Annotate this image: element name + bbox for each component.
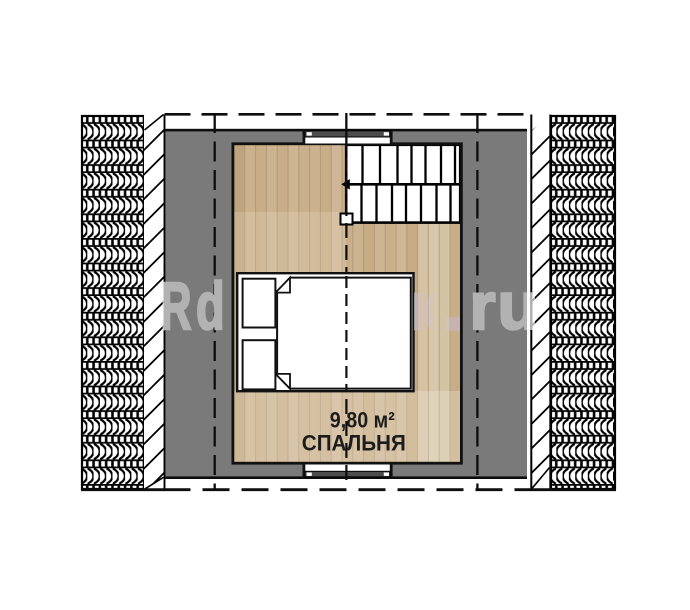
svg-text:к: к (412, 269, 439, 344)
svg-text:R: R (161, 268, 192, 343)
svg-text:9,80 м²: 9,80 м² (330, 407, 395, 432)
svg-text:u: u (498, 269, 539, 344)
svg-text:d: d (196, 270, 225, 344)
svg-text:СПАЛЬНЯ: СПАЛЬНЯ (302, 431, 406, 456)
svg-text:r: r (470, 269, 496, 344)
